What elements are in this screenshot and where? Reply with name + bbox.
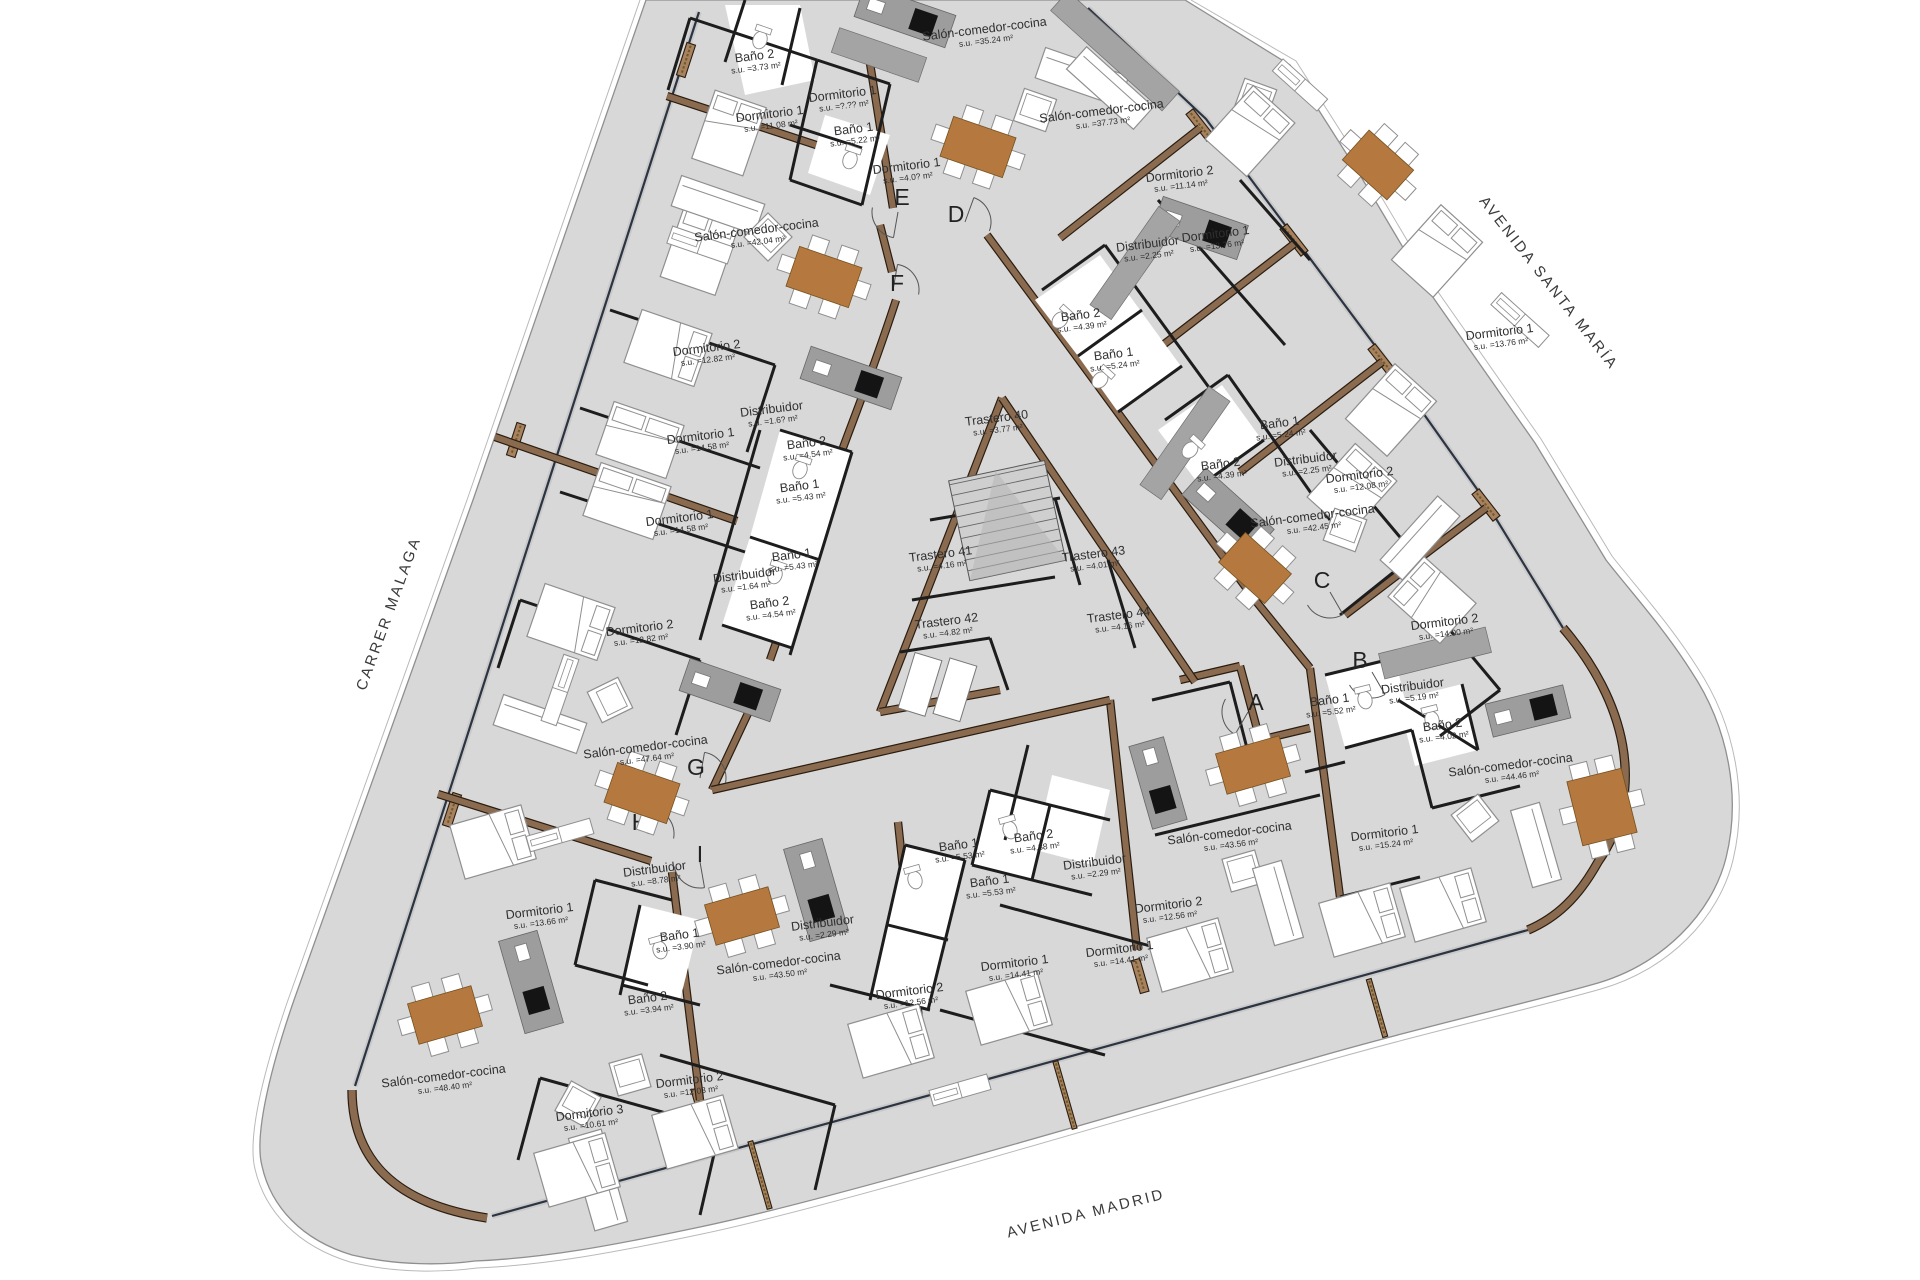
svg-text:F: F — [890, 270, 904, 296]
svg-text:B: B — [1352, 647, 1367, 673]
svg-text:C: C — [1314, 567, 1331, 593]
svg-text:D: D — [948, 201, 965, 227]
svg-text:A: A — [1248, 689, 1264, 715]
svg-text:E: E — [894, 184, 909, 210]
svg-text:I: I — [697, 841, 703, 867]
svg-text:G: G — [687, 754, 705, 780]
